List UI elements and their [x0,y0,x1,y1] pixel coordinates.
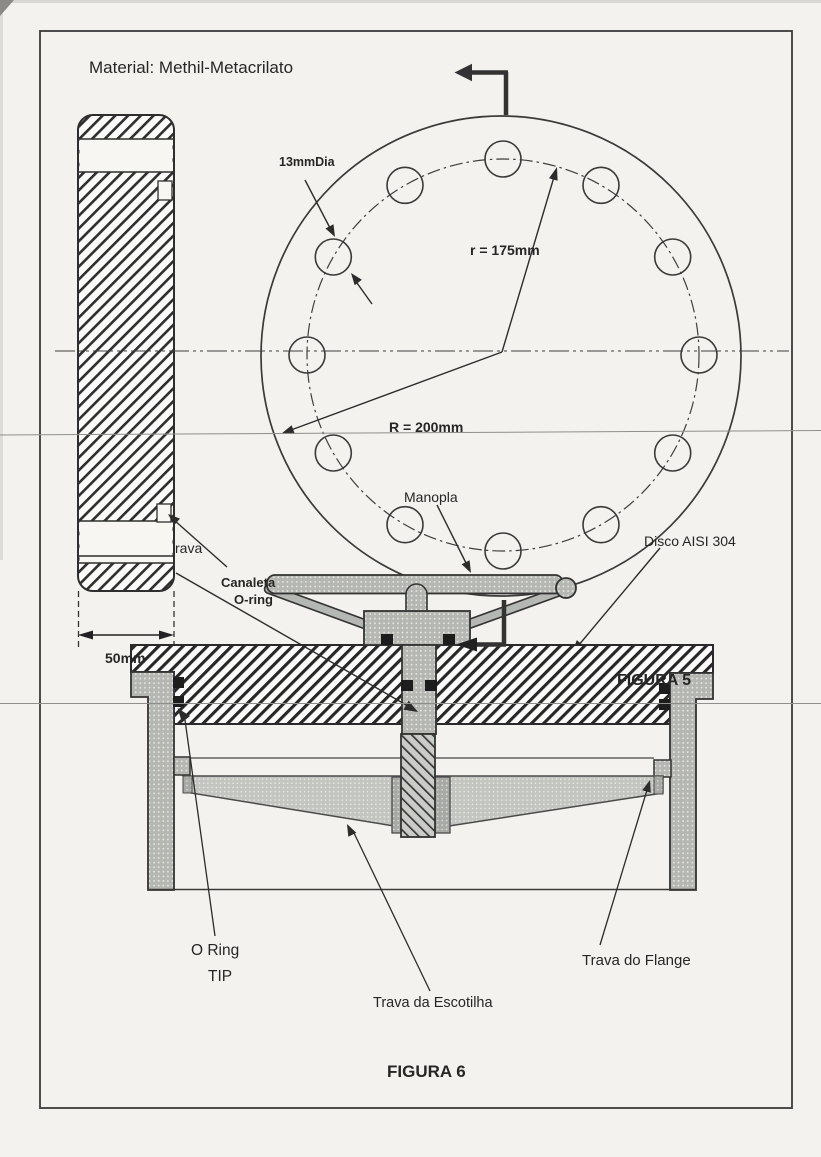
svg-text:13mmDia: 13mmDia [279,155,336,169]
svg-text:Disco AISI 304: Disco AISI 304 [644,533,736,549]
svg-text:Canaleta: Canaleta [221,575,276,590]
svg-text:50mm: 50mm [105,650,145,666]
svg-text:r = 175mm: r = 175mm [470,242,540,258]
svg-text:O-ring: O-ring [234,592,273,607]
svg-text:O Ring: O Ring [191,942,239,959]
svg-text:FIGURA 6: FIGURA 6 [387,1062,466,1081]
svg-text:Material: Methil-Metacrilato: Material: Methil-Metacrilato [89,58,293,77]
svg-text:Trava da Escotilha: Trava da Escotilha [373,995,493,1011]
svg-text:FIGURA 5: FIGURA 5 [617,672,691,689]
svg-text:Trava do Flange: Trava do Flange [582,952,691,969]
svg-text:TIP: TIP [208,968,232,985]
svg-text:Manopla: Manopla [404,489,458,505]
svg-text:rava: rava [175,540,202,556]
